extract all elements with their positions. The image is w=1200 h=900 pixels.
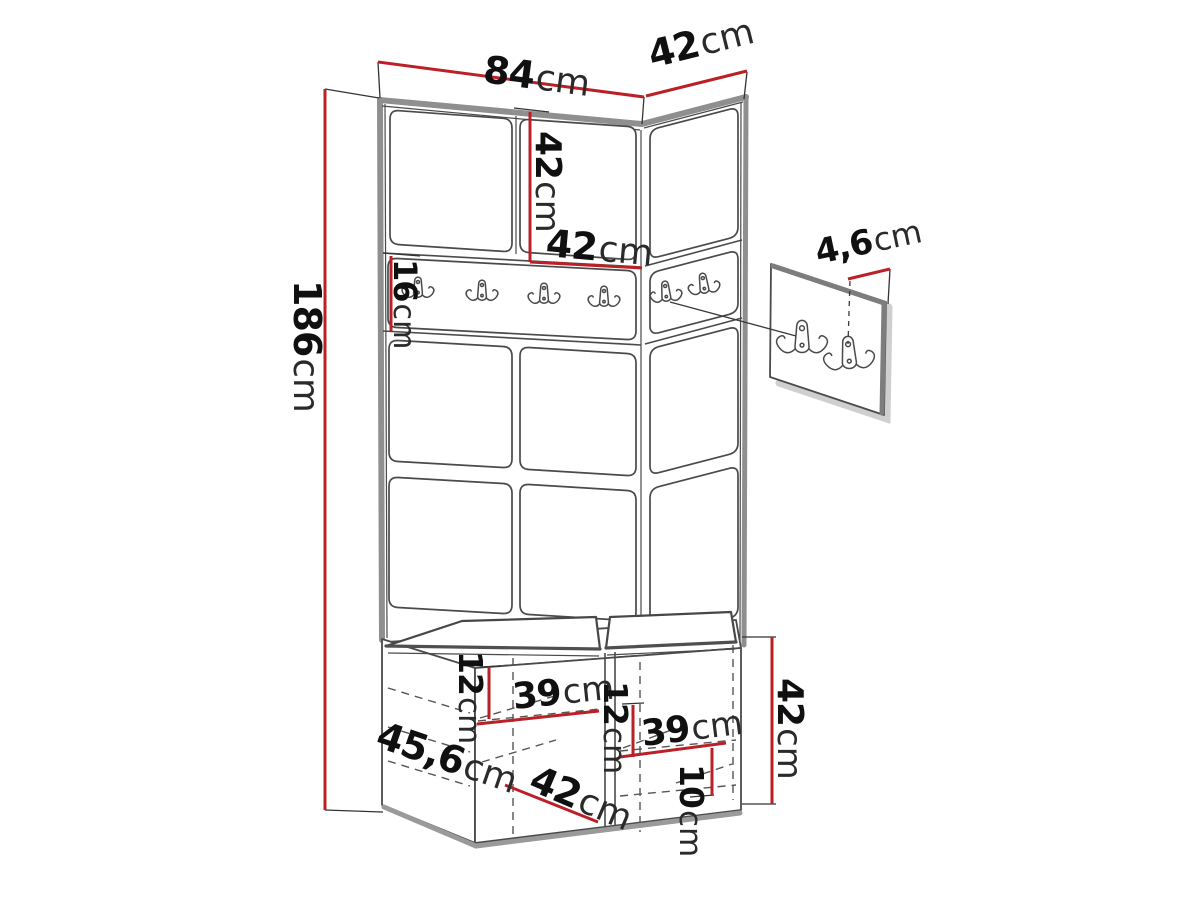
label-top-width: 84cm xyxy=(481,47,593,105)
cabinet-door-left xyxy=(390,111,512,252)
unit-left-edge xyxy=(380,100,382,640)
label-right-drop: 12cm xyxy=(596,681,635,774)
panel-row2-left xyxy=(389,477,512,613)
label-total-height: 186cm xyxy=(285,280,329,413)
unit-left-inner-line xyxy=(385,104,387,638)
detail-panel-right-edge xyxy=(882,304,884,413)
label-left-drop: 12cm xyxy=(451,651,490,744)
label-rail-height: 16cm xyxy=(386,259,424,349)
label-cabinet-height: 42cm xyxy=(527,131,568,233)
label-cabinet-width: 42cm xyxy=(544,221,655,274)
upholstered-panels xyxy=(389,328,738,637)
label-detail-offset: 4,6cm xyxy=(812,211,926,273)
label-bottom-gap: 10cm xyxy=(672,764,711,857)
panel-row1-left xyxy=(389,340,512,467)
furniture-dimension-diagram: 84cm 42cm 42cm 42cm 16cm 186cm 4,6cm 12c… xyxy=(0,0,1200,900)
dimline-detail-offset xyxy=(848,269,890,279)
unit-right-edge xyxy=(744,97,746,645)
cabinet-door-return xyxy=(650,109,738,257)
panel-row1-right xyxy=(520,347,636,475)
tick-186-top xyxy=(325,89,379,98)
wardrobe-unit xyxy=(380,97,746,645)
cushion-left xyxy=(386,617,600,649)
unit-right-inner-line xyxy=(740,103,741,640)
tick-84-42-corner xyxy=(642,97,644,124)
diagram-canvas: 84cm 42cm 42cm 42cm 16cm 186cm 4,6cm 12c… xyxy=(0,0,1200,900)
label-bench-height: 42cm xyxy=(769,678,810,780)
tick-84-left xyxy=(378,62,380,98)
panel-row2-right xyxy=(520,484,636,620)
hook-rail-front-panel xyxy=(388,258,636,339)
panel-return-row1 xyxy=(650,328,738,473)
tick-detail-offset xyxy=(888,269,890,304)
label-top-depth: 42cm xyxy=(644,8,759,77)
tick-186-bottom xyxy=(325,810,383,812)
